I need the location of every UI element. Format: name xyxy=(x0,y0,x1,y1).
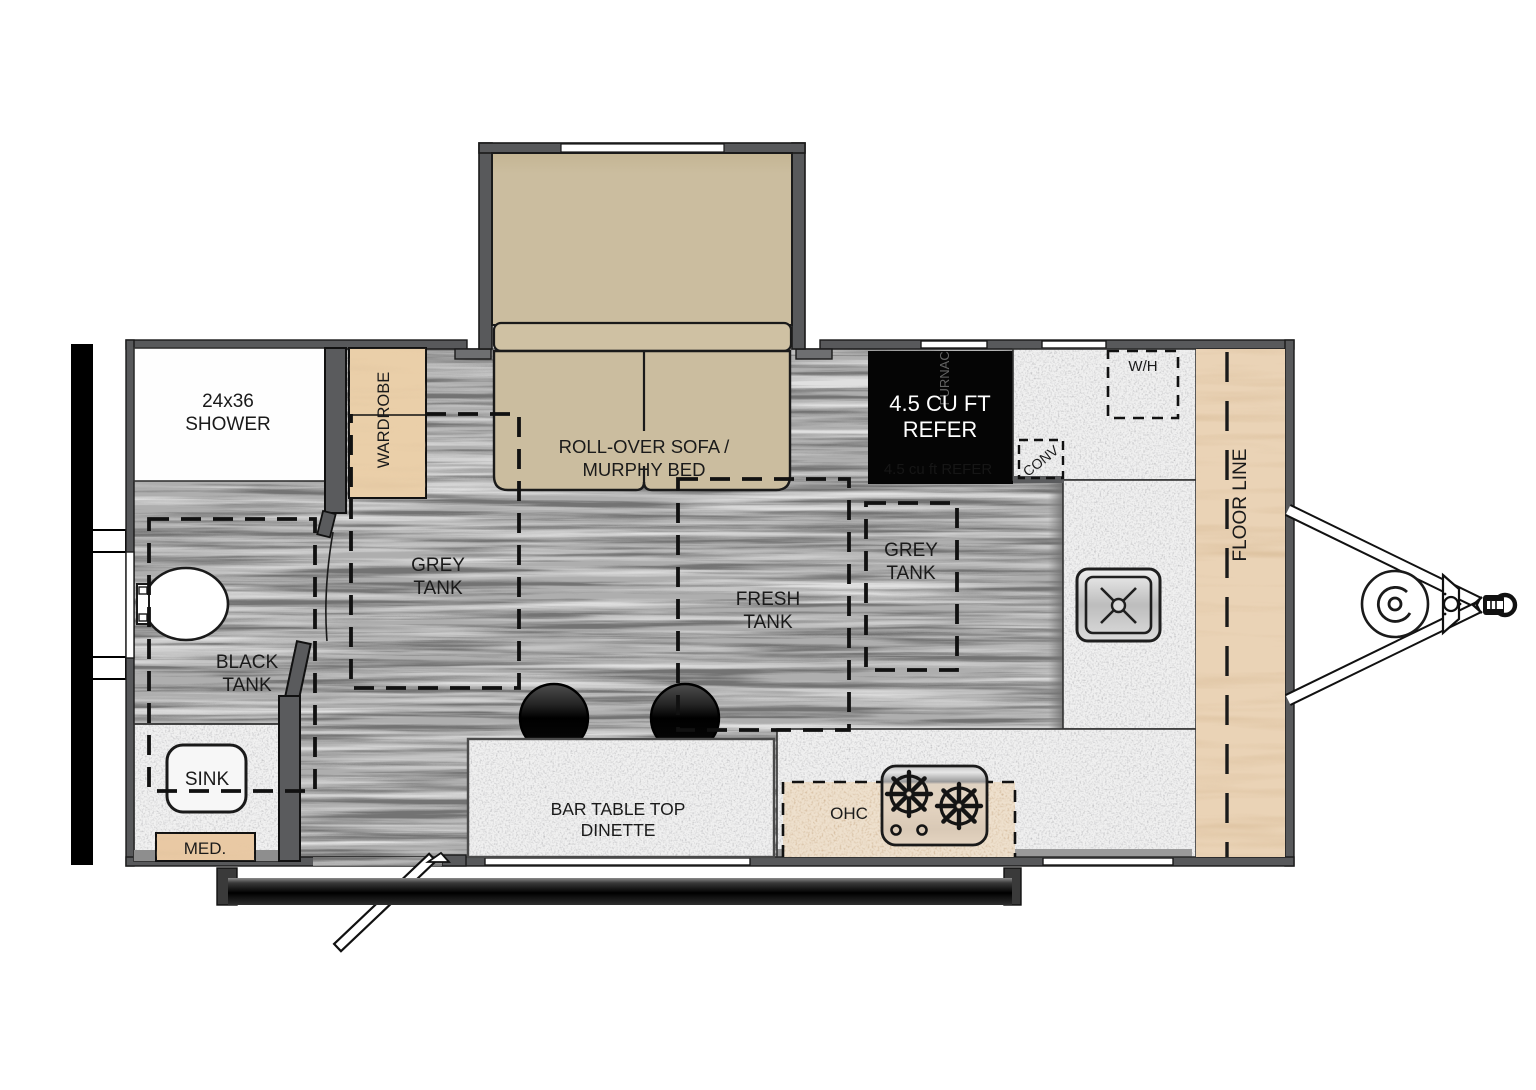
svg-text:BAR TABLE TOP: BAR TABLE TOP xyxy=(551,799,686,819)
svg-text:W/H: W/H xyxy=(1128,358,1157,375)
svg-text:TANK: TANK xyxy=(222,675,272,696)
svg-text:OHC: OHC xyxy=(830,804,868,823)
svg-text:GREY: GREY xyxy=(884,540,938,561)
svg-text:TANK: TANK xyxy=(413,578,463,599)
svg-text:SHOWER: SHOWER xyxy=(185,414,271,435)
svg-text:24x36: 24x36 xyxy=(202,391,254,412)
svg-text:MURPHY BED: MURPHY BED xyxy=(582,459,705,480)
svg-text:BLACK: BLACK xyxy=(216,652,279,673)
svg-text:GREY: GREY xyxy=(411,555,465,576)
svg-text:FLOOR LINE: FLOOR LINE xyxy=(1230,449,1251,562)
svg-text:4.5 cu ft REFER: 4.5 cu ft REFER xyxy=(884,461,993,478)
svg-text:FRESH: FRESH xyxy=(736,589,800,610)
svg-text:TANK: TANK xyxy=(743,612,793,633)
svg-text:SINK: SINK xyxy=(185,769,230,790)
svg-text:DINETTE: DINETTE xyxy=(581,820,656,840)
svg-text:TANK: TANK xyxy=(886,563,936,584)
svg-text:ROLL-OVER SOFA /: ROLL-OVER SOFA / xyxy=(559,436,731,457)
svg-text:4.5 CU FT: 4.5 CU FT xyxy=(889,391,990,416)
svg-text:WARDROBE: WARDROBE xyxy=(375,372,393,469)
svg-text:MED.: MED. xyxy=(184,839,227,858)
svg-text:REFER: REFER xyxy=(903,417,978,442)
